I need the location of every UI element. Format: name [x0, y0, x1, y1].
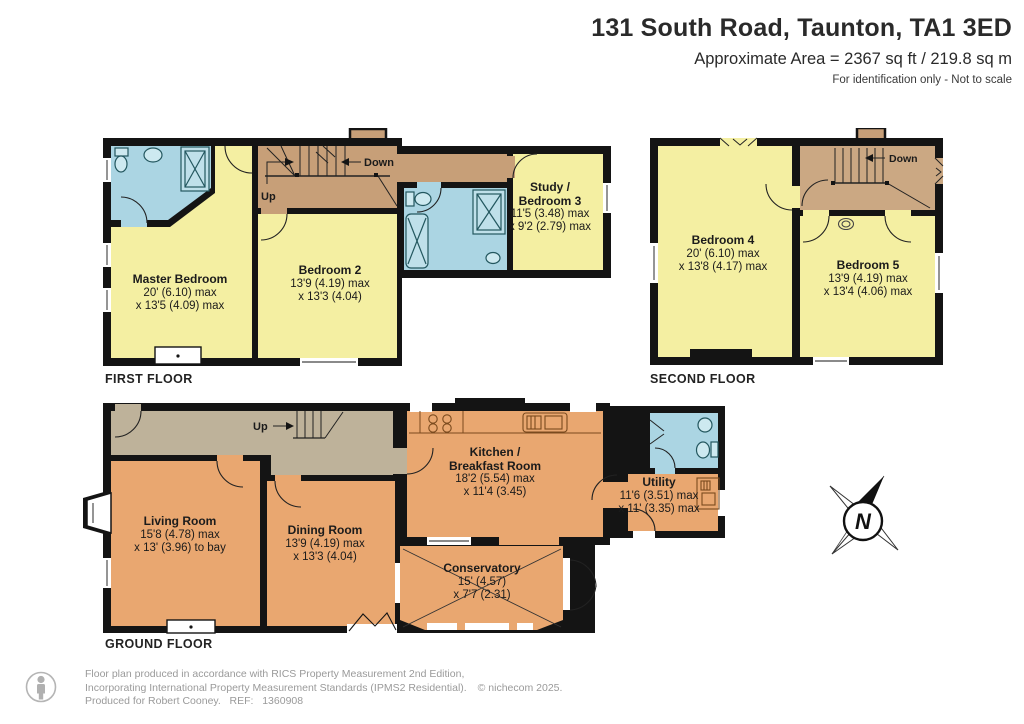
bedroom-4: [658, 146, 792, 357]
toilet-icon: [406, 192, 414, 206]
sink-icon: [839, 219, 854, 230]
stairs-up-label: Up: [253, 421, 268, 433]
copyright: © nichecom 2025.: [478, 682, 563, 694]
sink-icon: [486, 253, 500, 264]
stairs-up-label: Up: [261, 191, 276, 203]
footer-line-1: Floor plan produced in accordance with R…: [85, 668, 562, 682]
first-floor-plan: Up Down: [95, 128, 615, 378]
bay-window: [87, 493, 111, 533]
fireplace: [167, 620, 215, 633]
sink-icon: [698, 418, 712, 432]
page-title: 131 South Road, Taunton, TA1 3ED: [591, 14, 1012, 43]
stairs-down-label: Down: [364, 157, 394, 169]
bedroom-5: [800, 216, 935, 357]
header: 131 South Road, Taunton, TA1 3ED Approxi…: [591, 14, 1012, 86]
second-floor-label: SECOND FLOOR: [650, 372, 756, 386]
approximate-area: Approximate Area = 2367 sq ft / 219.8 sq…: [591, 50, 1012, 69]
stairs-down-label: Down: [889, 153, 918, 165]
second-floor-plan: Down: [645, 128, 955, 378]
nichecom-logo-icon: [24, 668, 58, 706]
bedroom-2: [258, 214, 397, 358]
footer: Floor plan produced in accordance with R…: [24, 668, 562, 709]
ground-floor-label: GROUND FLOOR: [105, 637, 213, 651]
landing-corridor: [404, 154, 507, 182]
fireplace: [155, 347, 201, 364]
footer-line-3: Produced for Robert Cooney. REF: 1360908: [85, 695, 562, 709]
toilet-icon: [115, 148, 128, 156]
toilet-icon: [711, 442, 718, 457]
compass-icon: N: [818, 466, 913, 566]
floorplan-page: 131 South Road, Taunton, TA1 3ED Approxi…: [0, 0, 1024, 724]
first-floor-label: FIRST FLOOR: [105, 372, 193, 386]
study-bedroom-3: [513, 154, 603, 270]
identification-note: For identification only - Not to scale: [591, 74, 1012, 86]
sink-icon: [144, 148, 162, 162]
footer-line-2: Incorporating International Property Mea…: [85, 682, 562, 696]
living-room: [111, 461, 260, 626]
compass-north-label: N: [855, 509, 872, 534]
ground-floor-plan: Up: [75, 398, 745, 643]
